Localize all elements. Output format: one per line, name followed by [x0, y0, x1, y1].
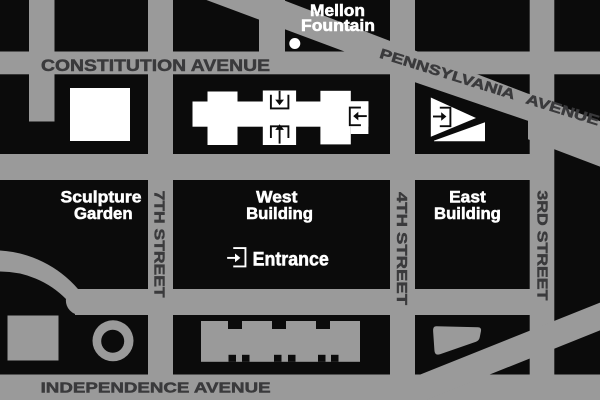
svg-text:4TH STREET: 4TH STREET [393, 192, 410, 305]
svg-text:Building: Building [246, 204, 313, 223]
svg-text:Building: Building [434, 204, 501, 223]
svg-text:Entrance: Entrance [253, 249, 329, 270]
svg-text:INDEPENDENCE AVENUE: INDEPENDENCE AVENUE [41, 380, 271, 397]
svg-text:CONSTITUTION AVENUE: CONSTITUTION AVENUE [41, 56, 270, 75]
svg-text:3RD STREET: 3RD STREET [534, 190, 551, 300]
svg-text:7TH STREET: 7TH STREET [151, 191, 168, 298]
svg-text:Fountain: Fountain [301, 17, 375, 35]
svg-text:Garden: Garden [74, 204, 133, 223]
